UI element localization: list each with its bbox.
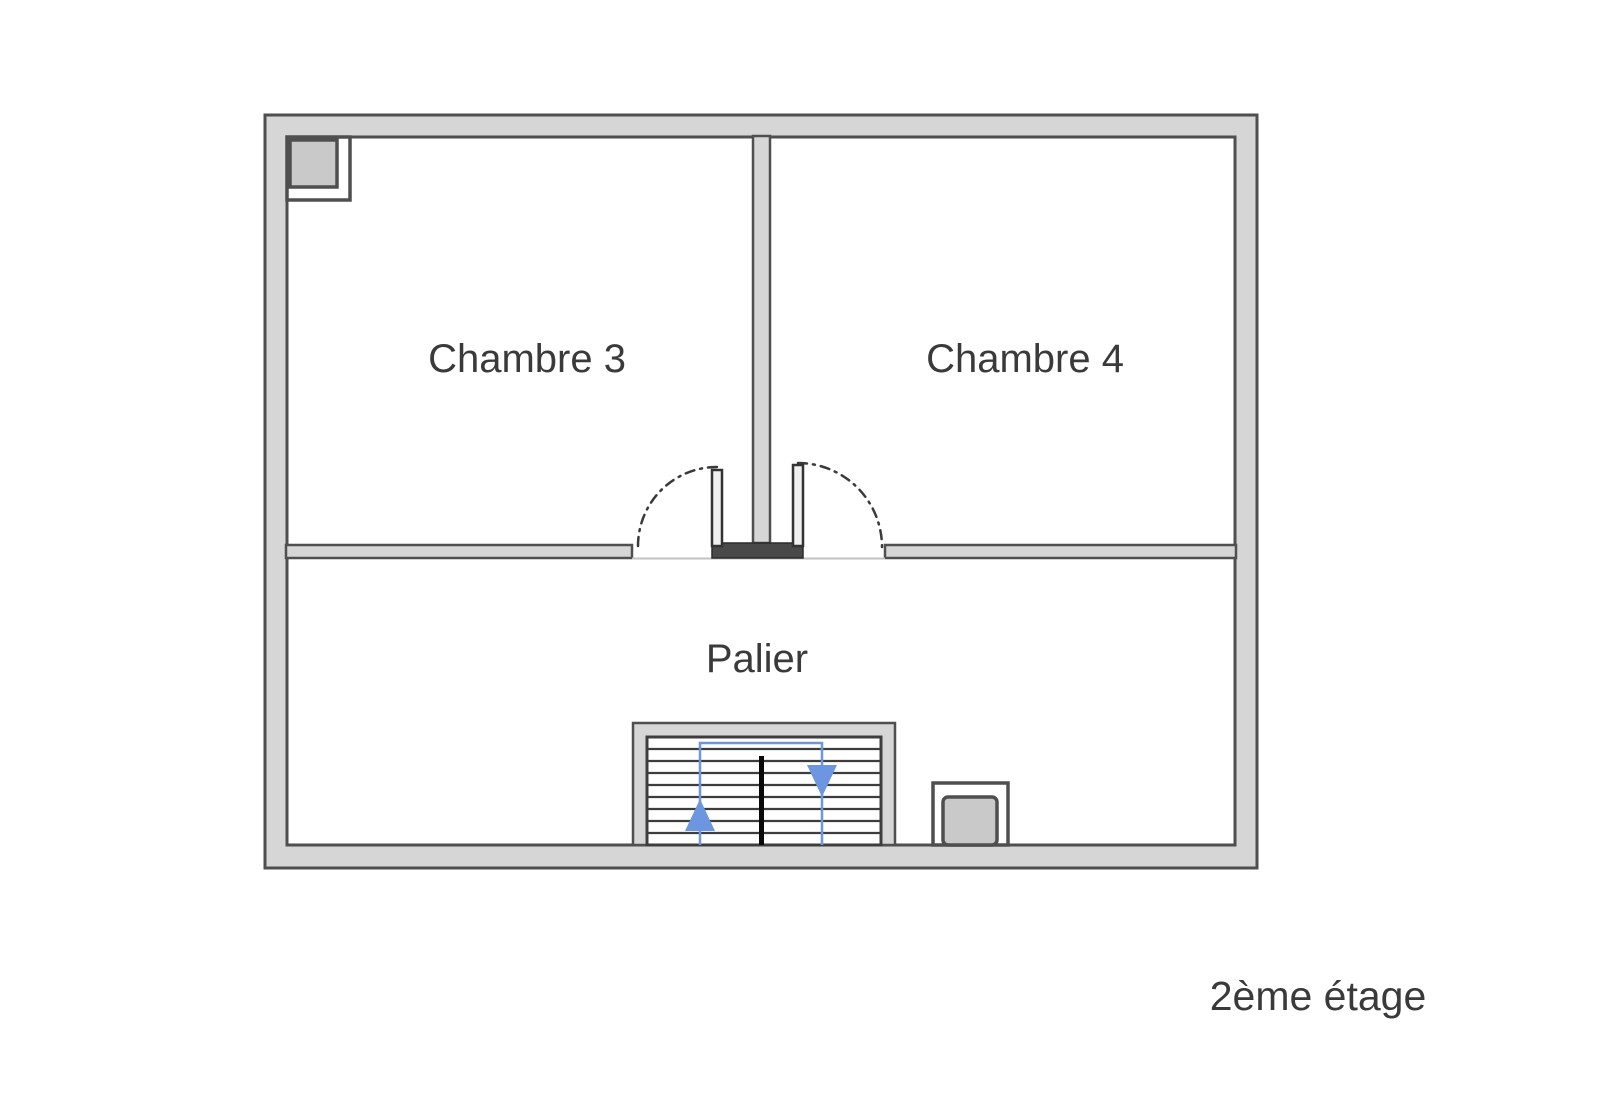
room-label-palier: Palier (706, 637, 808, 681)
door-leaf-right (793, 465, 803, 546)
room-label-chambre-4: Chambre 4 (926, 337, 1124, 381)
floor-caption: 2ème étage (1210, 973, 1427, 1019)
wall-palier-left (286, 545, 632, 558)
floor-plan-drawing: Chambre 3 Chambre 4 Palier 2ème étage (0, 0, 1600, 1093)
duct-top-left (287, 137, 350, 200)
staircase (633, 723, 895, 845)
door-jamb-stub (712, 543, 803, 558)
room-label-chambre-3: Chambre 3 (428, 337, 626, 381)
door-leaf-left (712, 470, 722, 546)
duct-core (290, 140, 337, 187)
floor-plan: Chambre 3 Chambre 4 Palier 2ème étage (0, 0, 1600, 1093)
wall-palier-right (885, 545, 1236, 558)
duct-core (943, 797, 997, 845)
duct-bottom-right (933, 783, 1008, 845)
wall-bedroom-divider (753, 136, 770, 543)
